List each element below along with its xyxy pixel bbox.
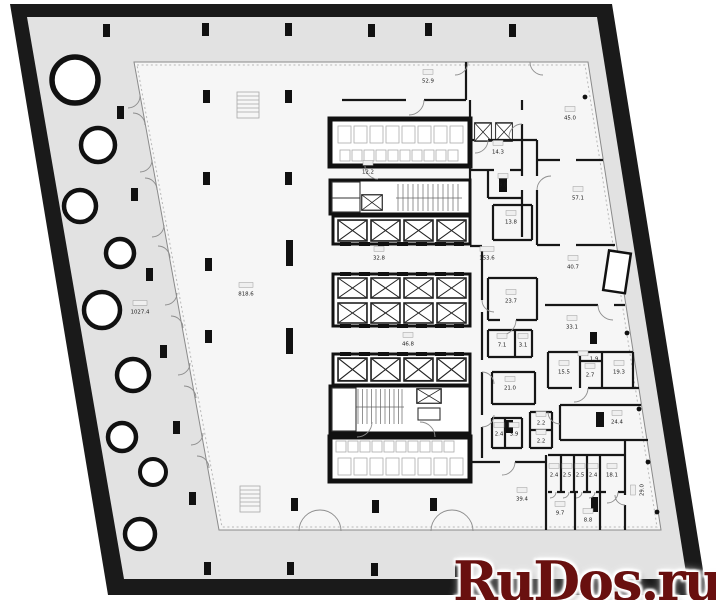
svg-text:1.9: 1.9 bbox=[590, 357, 599, 363]
svg-text:15.5: 15.5 bbox=[558, 370, 570, 376]
svg-text:8.8: 8.8 bbox=[584, 518, 593, 524]
rudos-watermark: RuDos.ru bbox=[453, 554, 716, 600]
svg-text:39.4: 39.4 bbox=[516, 497, 529, 503]
svg-text:3.1: 3.1 bbox=[519, 343, 528, 349]
terrace-stair-right bbox=[603, 250, 631, 293]
svg-text:2.4: 2.4 bbox=[589, 473, 598, 479]
svg-text:2.4: 2.4 bbox=[495, 432, 504, 438]
svg-text:1027.4: 1027.4 bbox=[131, 310, 150, 316]
meeting-room-top bbox=[330, 119, 470, 166]
svg-text:2.4: 2.4 bbox=[550, 473, 559, 479]
svg-text:57.1: 57.1 bbox=[572, 196, 584, 202]
svg-text:2.5: 2.5 bbox=[576, 473, 585, 479]
svg-text:45.0: 45.0 bbox=[564, 116, 577, 122]
svg-text:2.2: 2.2 bbox=[537, 439, 546, 445]
svg-text:52.9: 52.9 bbox=[422, 79, 435, 85]
svg-text:24.4: 24.4 bbox=[611, 420, 624, 426]
svg-text:13.8: 13.8 bbox=[505, 220, 518, 226]
svg-text:29.0: 29.0 bbox=[640, 483, 646, 496]
svg-text:18.1: 18.1 bbox=[606, 473, 618, 479]
svg-text:19.3: 19.3 bbox=[613, 370, 625, 376]
elevator-bank-2 bbox=[333, 354, 470, 385]
svg-text:7.1: 7.1 bbox=[498, 343, 507, 349]
svg-text:153.6: 153.6 bbox=[479, 256, 495, 262]
svg-text:2.2: 2.2 bbox=[537, 421, 546, 427]
svg-text:21.0: 21.0 bbox=[504, 386, 517, 392]
svg-text:23.7: 23.7 bbox=[505, 299, 517, 305]
stair-core-top bbox=[330, 180, 470, 214]
floor-plan-svg: 818.61027.452.945.014.312.29.057.113.832… bbox=[0, 0, 716, 600]
elevator-icon bbox=[417, 389, 441, 404]
svg-text:818.6: 818.6 bbox=[238, 292, 254, 298]
svg-text:32.8: 32.8 bbox=[373, 256, 386, 262]
floorplan-screenshot: 818.61027.452.945.014.312.29.057.113.832… bbox=[0, 0, 716, 600]
svg-text:2.5: 2.5 bbox=[563, 473, 572, 479]
meeting-room-bottom bbox=[330, 437, 470, 481]
svg-text:9.0: 9.0 bbox=[499, 183, 508, 189]
svg-text:46.8: 46.8 bbox=[402, 342, 415, 348]
svg-text:40.7: 40.7 bbox=[567, 265, 579, 271]
elevator-icon bbox=[362, 195, 383, 210]
svg-text:9.7: 9.7 bbox=[556, 511, 565, 517]
elevator-bank-double bbox=[333, 274, 470, 326]
svg-text:12.2: 12.2 bbox=[362, 170, 374, 176]
svg-text:14.3: 14.3 bbox=[492, 150, 504, 156]
svg-text:2.7: 2.7 bbox=[586, 373, 595, 379]
svg-text:3.9: 3.9 bbox=[510, 432, 519, 438]
svg-text:33.1: 33.1 bbox=[566, 325, 578, 331]
stair-core-bottom bbox=[330, 386, 470, 433]
elevator-bank-1 bbox=[333, 216, 470, 244]
